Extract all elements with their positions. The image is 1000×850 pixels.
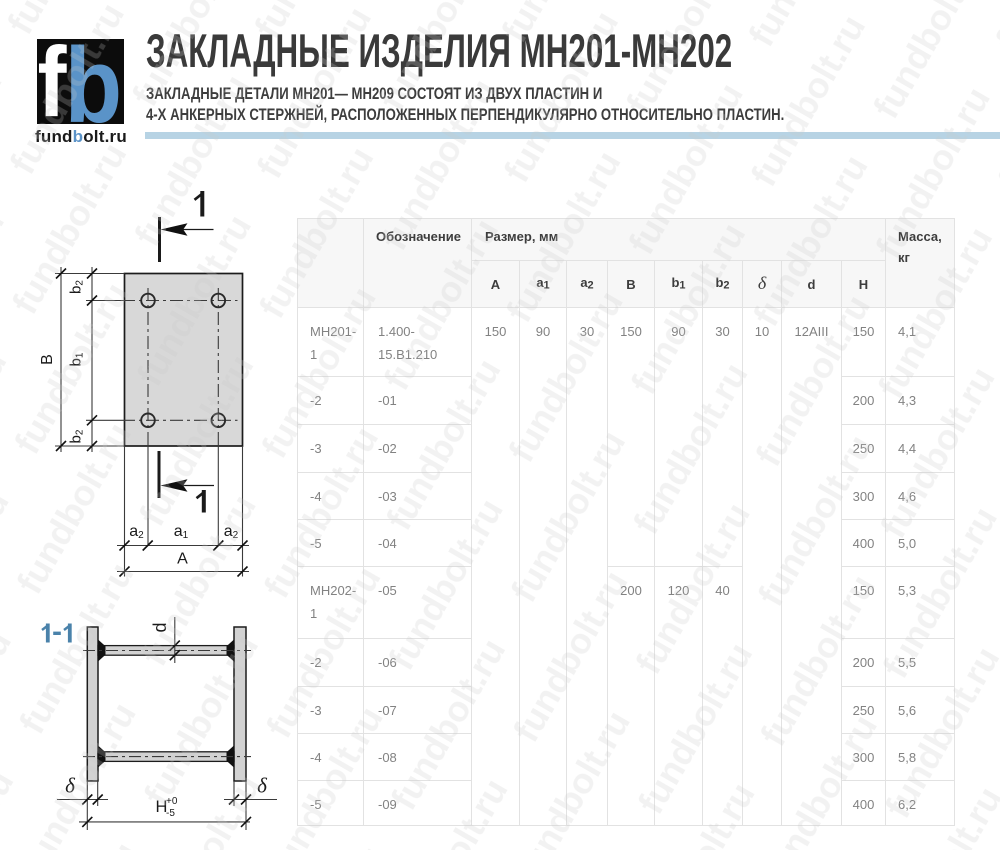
svg-text:a1: a1	[174, 523, 189, 541]
svg-text:B: B	[39, 354, 56, 365]
svg-text:b1: b1	[68, 352, 86, 366]
svg-text:a2: a2	[129, 523, 144, 541]
svg-text:+0: +0	[166, 796, 178, 807]
svg-text:-5: -5	[166, 808, 175, 819]
svg-text:b2: b2	[68, 429, 86, 443]
svg-text:b2: b2	[68, 280, 86, 294]
svg-text:a2: a2	[224, 523, 239, 541]
svg-text:f: f	[38, 39, 68, 124]
svg-text:b: b	[65, 39, 123, 124]
svg-text:δ: δ	[65, 774, 76, 798]
svg-text:A: A	[177, 551, 188, 568]
svg-text:d: d	[150, 622, 170, 632]
svg-text:δ: δ	[257, 774, 268, 798]
